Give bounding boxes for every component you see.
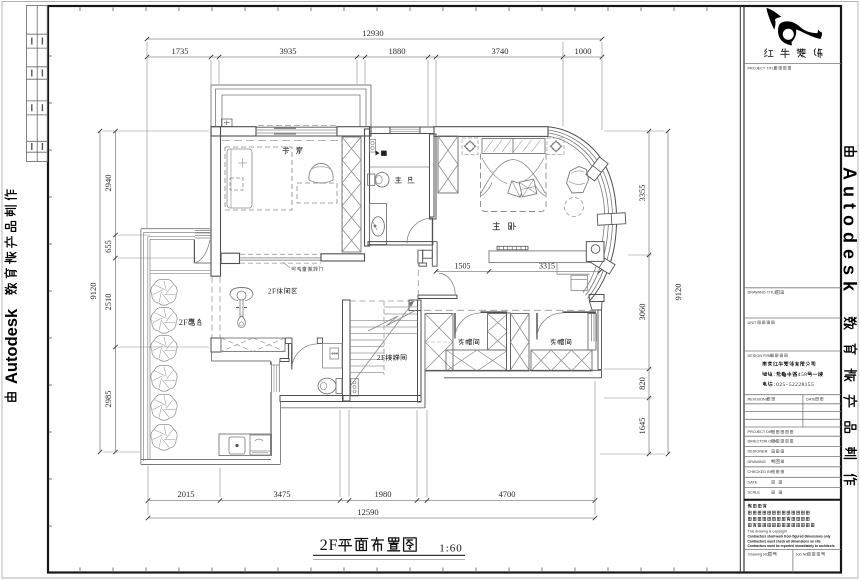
svg-text:This drawing is copyright: This drawing is copyright: [748, 529, 788, 533]
svg-text:Autodesk: Autodesk: [840, 167, 860, 297]
svg-text:PROJECT DIR.: PROJECT DIR.: [748, 430, 774, 434]
svg-text:2510: 2510: [103, 294, 113, 311]
svg-text:3740: 3740: [492, 46, 509, 56]
svg-text:9120: 9120: [88, 283, 98, 300]
svg-text:8: 8: [804, 372, 807, 378]
svg-text:SCALE: SCALE: [748, 491, 761, 495]
svg-text:F: F: [183, 318, 188, 327]
svg-text:F: F: [328, 536, 337, 554]
svg-text:9120: 9120: [673, 284, 683, 301]
svg-text:CHECKED BY: CHECKED BY: [748, 470, 773, 474]
svg-text:DRAWING: DRAWING: [748, 460, 766, 464]
svg-text:3935: 3935: [280, 46, 297, 56]
svg-text:DATE: DATE: [806, 397, 816, 401]
svg-text:3060: 3060: [637, 304, 647, 321]
svg-text:Autodesk: Autodesk: [3, 308, 21, 384]
svg-text:3315: 3315: [539, 262, 555, 271]
svg-text:1735: 1735: [172, 46, 189, 56]
svg-text:DATE: DATE: [748, 481, 758, 485]
svg-text:2985: 2985: [103, 391, 113, 408]
svg-text:655: 655: [103, 240, 113, 253]
svg-text:Contractors must be reported i: Contractors must be reported immediately…: [748, 544, 835, 548]
svg-text:F: F: [381, 353, 385, 362]
svg-text:1980: 1980: [375, 489, 392, 499]
svg-text:Contractors must check all dim: Contractors must check all dimensions on…: [748, 539, 821, 543]
svg-text:4700: 4700: [499, 489, 516, 499]
svg-text:3475: 3475: [274, 489, 291, 499]
svg-text:DRAWING TITLE: DRAWING TITLE: [748, 291, 778, 295]
svg-text:REVISIONS: REVISIONS: [748, 397, 769, 401]
svg-text:Drawing NO: Drawing NO: [748, 552, 769, 556]
svg-text:1505: 1505: [455, 262, 471, 271]
svg-text:2: 2: [320, 536, 328, 554]
svg-text:DESIGNER: DESIGNER: [748, 450, 768, 454]
svg-text:1645: 1645: [637, 418, 647, 435]
svg-text:1000: 1000: [575, 46, 592, 56]
svg-text:12930: 12930: [362, 28, 383, 38]
svg-text:2940: 2940: [103, 175, 113, 192]
svg-text:Job NO: Job NO: [796, 552, 809, 556]
svg-text:-: -: [786, 382, 788, 388]
svg-text:12590: 12590: [357, 507, 378, 517]
svg-text:UNIT: UNIT: [748, 321, 758, 325]
svg-text:820: 820: [637, 377, 647, 390]
svg-text:Contractors shall work from fi: Contractors shall work from figured dime…: [748, 535, 831, 539]
svg-text:DESIGN FIRM: DESIGN FIRM: [748, 354, 773, 358]
svg-text:3355: 3355: [637, 185, 647, 202]
svg-text:1:60: 1:60: [439, 543, 463, 555]
svg-text:F: F: [272, 287, 276, 296]
svg-text:1880: 1880: [389, 46, 406, 56]
svg-text:5: 5: [811, 382, 814, 388]
svg-text:PROJECT TITLE: PROJECT TITLE: [748, 66, 777, 70]
svg-text:5: 5: [783, 382, 786, 388]
svg-text:2015: 2015: [178, 489, 195, 499]
